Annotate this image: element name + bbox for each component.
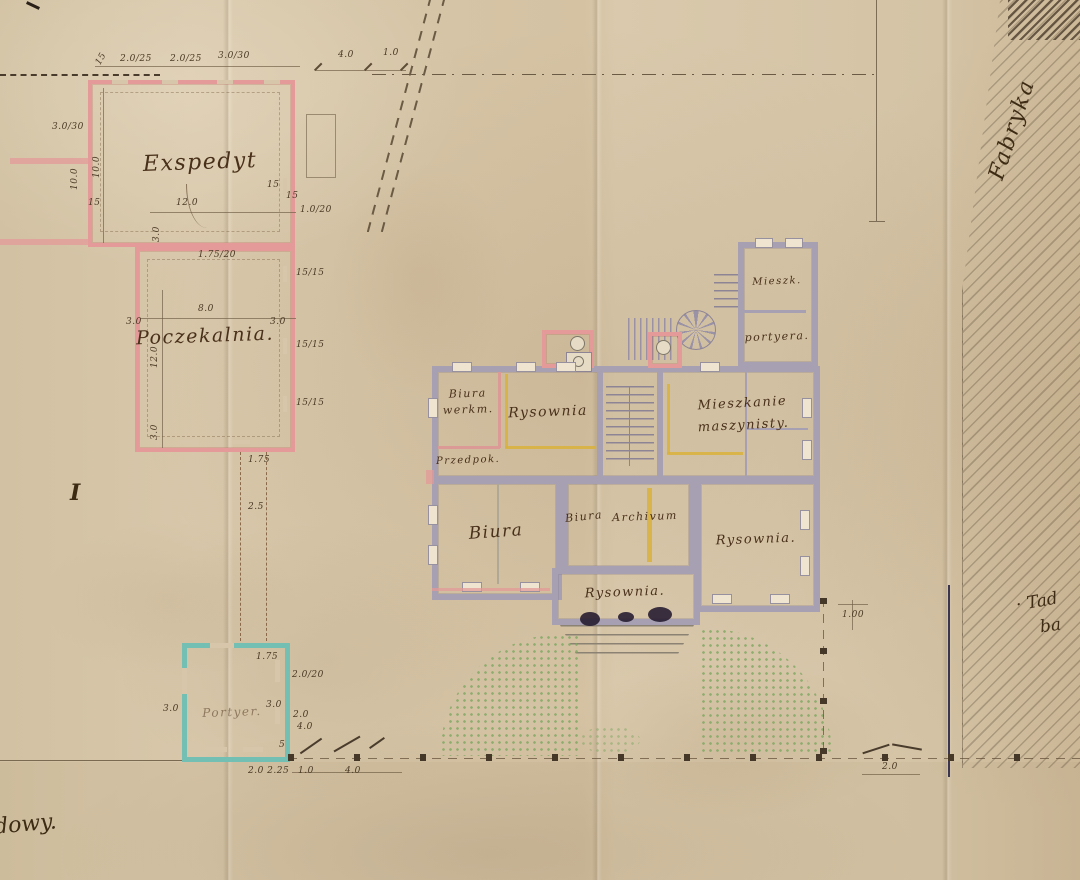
dimension-label: 1.0 bbox=[298, 766, 314, 776]
dimension-label: 3.0 bbox=[150, 424, 160, 440]
foreground-strip bbox=[0, 762, 1080, 880]
pencil-mark bbox=[26, 1, 40, 10]
dimension-label: 2.0 bbox=[882, 762, 898, 772]
stove-circle bbox=[656, 340, 671, 355]
gate-mark bbox=[300, 738, 322, 755]
room-label-mieszk: Mieszk. bbox=[746, 275, 808, 288]
stairhall-wall bbox=[657, 372, 663, 478]
paper-crease bbox=[942, 0, 952, 880]
main-staircase bbox=[606, 386, 654, 466]
wall-opening bbox=[275, 660, 280, 682]
dimension-label: 1.75 bbox=[248, 455, 270, 465]
fence-right bbox=[820, 598, 828, 758]
room-label-przedpok: Przedpok. bbox=[436, 454, 496, 467]
dimension-label: 1.00 bbox=[842, 610, 864, 620]
dimension-label: 1.0/20 bbox=[300, 205, 332, 215]
dimension-label: 1.75 bbox=[256, 652, 278, 662]
room-label-exspedyt: Exspedyt bbox=[130, 148, 271, 178]
window bbox=[712, 594, 732, 604]
dimension-label: 3.0/30 bbox=[52, 122, 84, 132]
garden-bed-right bbox=[700, 628, 832, 756]
room-label-rysownia-top: Rysownia bbox=[502, 402, 595, 421]
stairhall-wall bbox=[597, 372, 603, 478]
dimension-label: 3.0 bbox=[152, 226, 162, 242]
room-label-line: werkm. bbox=[443, 402, 494, 417]
dimension-line bbox=[103, 88, 104, 243]
window bbox=[800, 510, 810, 530]
floor-plan-sheet: Fabryka Exspedyt Poczekalnia. Portyer. bbox=[0, 0, 1080, 880]
dimension-label: 3.0 bbox=[270, 317, 286, 327]
new-wall-yellow bbox=[667, 452, 743, 455]
dimension-label: 4.0 bbox=[297, 722, 313, 732]
dimension-label: 2.0 bbox=[293, 710, 309, 720]
paper-stain bbox=[330, 160, 510, 400]
wall-opening bbox=[180, 440, 198, 444]
ink-blot bbox=[618, 612, 634, 622]
window bbox=[770, 594, 790, 604]
room-label-portyera: portyera. bbox=[744, 329, 810, 344]
wall-opening bbox=[162, 80, 178, 84]
dimension-label: 3.0/30 bbox=[218, 51, 250, 61]
dimension-label: 2.0/20 bbox=[292, 670, 324, 680]
partition bbox=[498, 372, 501, 448]
dimension-line bbox=[162, 290, 163, 448]
window bbox=[428, 505, 438, 525]
dimension-label: 15 bbox=[286, 191, 298, 201]
window bbox=[755, 238, 773, 248]
ink-blot bbox=[580, 612, 600, 626]
dimension-label: 2.5 bbox=[248, 502, 264, 512]
dimension-label: 15 bbox=[88, 198, 100, 208]
new-wall-yellow bbox=[647, 488, 652, 562]
ink-blot bbox=[648, 607, 672, 622]
window bbox=[802, 440, 812, 460]
factory-corner-hatch bbox=[1008, 0, 1080, 40]
window bbox=[556, 362, 576, 372]
dimension-label: 15 bbox=[267, 180, 279, 190]
property-line-dark bbox=[948, 585, 950, 777]
outbuilding-outline bbox=[306, 114, 336, 178]
wall-opening bbox=[283, 396, 287, 412]
wall-opening bbox=[283, 266, 287, 282]
dimension-line bbox=[150, 212, 296, 213]
stove-circle bbox=[570, 336, 585, 351]
wall-opening bbox=[112, 80, 128, 84]
dimension-label: 12.0 bbox=[176, 198, 198, 208]
site-boundary-dashdot-line bbox=[372, 74, 877, 75]
gate-mark bbox=[334, 736, 361, 753]
dimension-line bbox=[316, 70, 406, 71]
dimension-label: 10.0 bbox=[70, 168, 80, 190]
window-sill-pink bbox=[426, 470, 434, 484]
wall-opening bbox=[182, 668, 187, 694]
dimension-line bbox=[838, 604, 868, 605]
dimension-label: 15/15 bbox=[296, 268, 324, 278]
spiral-staircase bbox=[676, 310, 716, 350]
wall-opening bbox=[283, 338, 287, 354]
dimension-label: 5 bbox=[279, 740, 285, 750]
new-wall-yellow bbox=[667, 384, 670, 454]
window bbox=[428, 398, 438, 418]
dimension-label: 2.0/25 bbox=[120, 54, 152, 64]
dimension-label: 15/15 bbox=[296, 340, 324, 350]
wall-opening bbox=[210, 643, 234, 648]
garden-bed-left bbox=[440, 634, 580, 756]
wall-stub bbox=[10, 158, 88, 164]
room-label-line: Mieszkanie bbox=[697, 394, 787, 414]
dimension-label: 3.0 bbox=[126, 317, 142, 327]
roman-numeral-mark: I bbox=[70, 480, 80, 506]
annex-partition bbox=[744, 310, 806, 313]
dimension-line bbox=[95, 66, 300, 67]
dimension-label: 15/15 bbox=[296, 398, 324, 408]
wall-opening bbox=[232, 440, 250, 444]
room-label-line: maszynisty. bbox=[697, 416, 789, 436]
dimension-label: 8.0 bbox=[198, 304, 214, 314]
wall-stub bbox=[0, 239, 88, 245]
wall-opening bbox=[264, 80, 280, 84]
window bbox=[516, 362, 536, 372]
staircase-centerline bbox=[629, 386, 630, 466]
dimension-label: 3.0 bbox=[266, 700, 282, 710]
annex-stair bbox=[714, 274, 738, 312]
fence-bottom bbox=[288, 754, 1080, 762]
dimension-line bbox=[862, 774, 920, 775]
dimension-label: 10.0 bbox=[92, 156, 102, 178]
entrance-steps bbox=[560, 625, 694, 659]
room-label-mieszkanie-maszynisty: Mieszkanie maszynisty. bbox=[673, 389, 813, 440]
survey-line bbox=[876, 0, 877, 222]
annex-walls bbox=[738, 242, 818, 368]
plinth-pink bbox=[432, 588, 550, 591]
window bbox=[785, 238, 803, 248]
dimension-label: 1.75/20 bbox=[198, 250, 236, 260]
wall-opening bbox=[217, 80, 233, 84]
dimension-label: 4.0 bbox=[345, 766, 361, 776]
garden-patch bbox=[580, 726, 640, 754]
corridor-line bbox=[240, 452, 241, 646]
window bbox=[452, 362, 472, 372]
room-label-biura-werkm: Biura werkm. bbox=[439, 385, 496, 419]
dimension-label: 2.0/25 bbox=[170, 54, 202, 64]
dimension-label: 3.0 bbox=[163, 704, 179, 714]
dimension-label: 2.0 2.25 bbox=[248, 766, 289, 776]
signature-line2: ba bbox=[1039, 615, 1063, 638]
new-wall-yellow bbox=[505, 446, 595, 449]
window bbox=[700, 362, 720, 372]
room-label-archivum: Archivum bbox=[610, 509, 680, 524]
existing-wall-dashed bbox=[0, 74, 160, 76]
main-lowermid-block-walls bbox=[562, 478, 695, 572]
window bbox=[428, 545, 438, 565]
wall-opening bbox=[205, 747, 227, 752]
corridor-line bbox=[266, 452, 267, 646]
dimension-label: 12.0 bbox=[150, 346, 160, 368]
room-label-line: Biura bbox=[448, 386, 486, 400]
dimension-label: 15 bbox=[94, 51, 109, 67]
window bbox=[800, 556, 810, 576]
room-label-portyer: Portyer. bbox=[192, 704, 272, 721]
dimension-label: 4.0 bbox=[338, 50, 354, 60]
gate-mark bbox=[369, 737, 385, 749]
partition bbox=[438, 446, 500, 449]
dimension-label: 1.0 bbox=[383, 48, 399, 58]
survey-line-foot bbox=[869, 221, 885, 222]
wall-opening bbox=[243, 747, 263, 752]
